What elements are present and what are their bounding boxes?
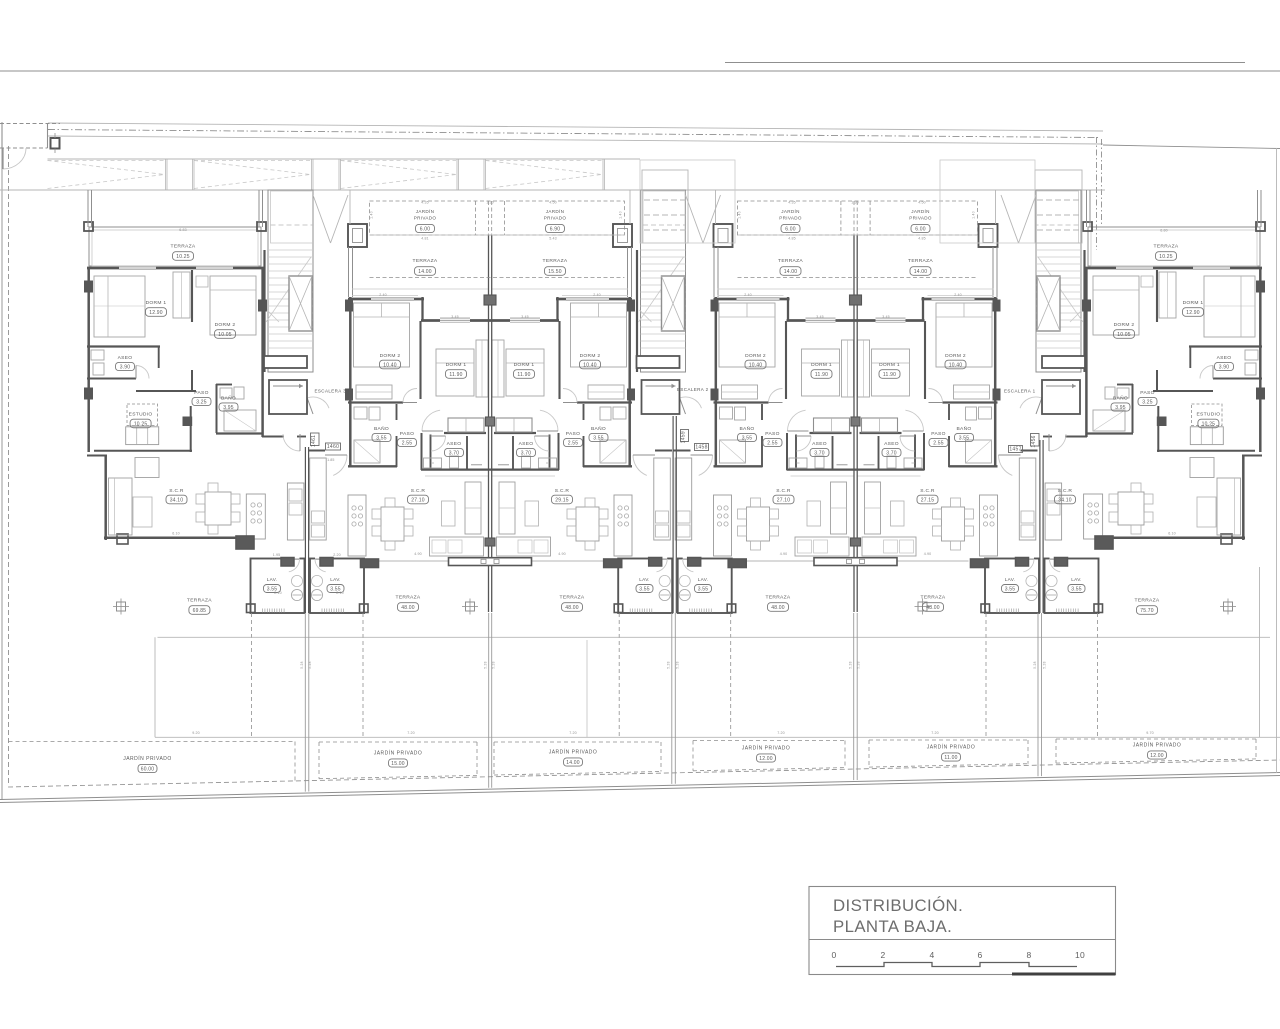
svg-text:TERRAZA: TERRAZA [396, 595, 421, 601]
svg-text:JARDÍN PRIVADO: JARDÍN PRIVADO [549, 749, 598, 756]
svg-text:ESTUDIO: ESTUDIO [1196, 412, 1220, 418]
svg-text:3.55: 3.55 [1005, 586, 1016, 592]
svg-text:PRIVADO: PRIVADO [779, 216, 802, 221]
svg-text:JARDÍN PRIVADO: JARDÍN PRIVADO [742, 745, 791, 752]
svg-text:3.45: 3.45 [521, 315, 528, 319]
svg-text:5.28: 5.28 [849, 661, 853, 668]
svg-text:29.15: 29.15 [555, 497, 569, 503]
svg-text:DORM 1: DORM 1 [146, 300, 167, 306]
svg-text:3.55: 3.55 [593, 435, 604, 441]
svg-text:BAÑO: BAÑO [956, 425, 971, 432]
svg-text:12.00: 12.00 [759, 756, 773, 762]
svg-text:4.35: 4.35 [788, 201, 795, 205]
svg-text:5.28: 5.28 [308, 661, 312, 668]
svg-text:PRIVADO: PRIVADO [544, 216, 567, 221]
svg-text:DORM 1: DORM 1 [879, 362, 900, 368]
svg-text:8: 8 [1026, 950, 1031, 960]
svg-text:PLANTA BAJA.: PLANTA BAJA. [833, 917, 952, 936]
svg-text:2: 2 [880, 950, 885, 960]
svg-text:TERRAZA: TERRAZA [908, 258, 933, 264]
svg-text:4.81: 4.81 [421, 237, 428, 241]
svg-text:10.25: 10.25 [176, 254, 190, 260]
svg-text:1460: 1460 [327, 444, 339, 450]
svg-text:48.00: 48.00 [926, 605, 940, 611]
svg-text:PASO: PASO [765, 431, 779, 437]
svg-text:1461: 1461 [311, 435, 317, 447]
svg-text:ESCALERA 1: ESCALERA 1 [1004, 389, 1036, 394]
svg-text:3.70: 3.70 [814, 450, 825, 456]
svg-text:10.40: 10.40 [949, 362, 963, 368]
svg-text:1.40: 1.40 [972, 211, 976, 219]
svg-text:69.85: 69.85 [193, 608, 207, 614]
svg-text:27.15: 27.15 [921, 497, 935, 503]
svg-text:12.00: 12.00 [1150, 753, 1164, 759]
svg-text:2.10: 2.10 [336, 591, 343, 595]
svg-text:DORM 2: DORM 2 [580, 353, 601, 359]
svg-text:0: 0 [831, 950, 836, 960]
svg-text:6.00: 6.00 [915, 226, 926, 232]
svg-text:1456: 1456 [1031, 435, 1037, 447]
svg-text:9.70: 9.70 [1146, 731, 1153, 735]
svg-text:15.00: 15.00 [391, 761, 405, 767]
svg-text:12.90: 12.90 [149, 310, 163, 316]
svg-text:3.55: 3.55 [1071, 586, 1082, 592]
svg-text:5.28: 5.28 [1042, 661, 1046, 668]
svg-text:10.40: 10.40 [749, 362, 763, 368]
svg-text:2.40: 2.40 [379, 293, 386, 297]
svg-text:4.50: 4.50 [549, 201, 556, 205]
svg-text:DORM 1: DORM 1 [1183, 300, 1204, 306]
svg-text:3.55: 3.55 [376, 435, 387, 441]
svg-text:3.55: 3.55 [742, 435, 753, 441]
svg-text:4.90: 4.90 [558, 552, 565, 556]
svg-text:2.40: 2.40 [744, 293, 751, 297]
svg-text:4.50: 4.50 [918, 201, 925, 205]
svg-text:3.45: 3.45 [816, 315, 823, 319]
svg-text:ESCALERA 2: ESCALERA 2 [677, 387, 709, 392]
svg-text:2.20: 2.20 [333, 553, 340, 557]
svg-text:TERRAZA: TERRAZA [921, 595, 946, 601]
svg-text:27.10: 27.10 [777, 497, 791, 503]
svg-text:15.50: 15.50 [548, 269, 562, 275]
svg-text:11.90: 11.90 [883, 372, 896, 378]
svg-text:LAV.: LAV. [1005, 577, 1016, 582]
svg-text:DORM 1: DORM 1 [446, 362, 467, 368]
svg-text:DORM 2: DORM 2 [945, 353, 966, 359]
svg-text:LAV.: LAV. [1071, 577, 1082, 582]
svg-text:75.70: 75.70 [1140, 608, 1154, 614]
svg-text:DISTRIBUCIÓN.: DISTRIBUCIÓN. [833, 896, 963, 915]
svg-text:JARDÍN PRIVADO: JARDÍN PRIVADO [123, 755, 172, 762]
svg-text:10.25: 10.25 [1159, 254, 1173, 260]
svg-text:JARDÍN: JARDÍN [911, 208, 929, 214]
svg-text:3.55: 3.55 [698, 586, 709, 592]
svg-text:11.90: 11.90 [449, 372, 462, 378]
svg-text:9.20: 9.20 [192, 731, 199, 735]
svg-text:S.C.R: S.C.R [555, 488, 570, 494]
svg-text:6.10: 6.10 [172, 532, 179, 536]
svg-text:5.28: 5.28 [667, 661, 671, 668]
svg-text:14.00: 14.00 [418, 269, 432, 275]
svg-text:27.10: 27.10 [411, 497, 425, 503]
svg-text:6.90: 6.90 [550, 226, 561, 232]
svg-text:TERRAZA: TERRAZA [778, 258, 803, 264]
svg-text:PRIVADO: PRIVADO [414, 216, 437, 221]
svg-text:1.85: 1.85 [327, 458, 334, 462]
svg-text:JARDÍN: JARDÍN [416, 208, 434, 214]
svg-text:48.00: 48.00 [401, 605, 415, 611]
svg-text:LAV.: LAV. [267, 577, 278, 582]
svg-text:2.10: 2.10 [274, 591, 281, 595]
svg-text:2.55: 2.55 [568, 440, 579, 446]
svg-text:14.00: 14.00 [784, 269, 798, 275]
svg-text:3.95: 3.95 [223, 405, 234, 411]
svg-text:S.C.R: S.C.R [411, 488, 426, 494]
svg-text:7.20: 7.20 [931, 731, 938, 735]
svg-text:PASO: PASO [400, 431, 414, 437]
svg-text:TERRAZA: TERRAZA [1135, 598, 1160, 604]
svg-text:3.45: 3.45 [882, 315, 889, 319]
svg-text:DORM 2: DORM 2 [1114, 322, 1135, 328]
svg-text:4.85: 4.85 [788, 237, 795, 241]
svg-text:1.40: 1.40 [370, 211, 374, 219]
svg-text:TERRAZA: TERRAZA [171, 244, 196, 250]
svg-text:PASO: PASO [1140, 390, 1154, 396]
svg-text:4: 4 [929, 950, 934, 960]
svg-text:1457: 1457 [1009, 447, 1021, 453]
svg-text:6.83: 6.83 [179, 228, 186, 232]
svg-text:48.00: 48.00 [771, 605, 785, 611]
svg-text:10.25: 10.25 [134, 421, 148, 427]
svg-text:ASEO: ASEO [118, 355, 133, 361]
svg-text:LAV.: LAV. [330, 577, 341, 582]
svg-text:10.40: 10.40 [383, 362, 397, 368]
svg-text:4.35: 4.35 [421, 201, 428, 205]
svg-text:TERRAZA: TERRAZA [560, 595, 585, 601]
svg-text:ASEO: ASEO [812, 441, 827, 447]
svg-text:11.00: 11.00 [944, 755, 957, 761]
svg-text:4.90: 4.90 [924, 552, 931, 556]
svg-text:5.28: 5.28 [300, 661, 304, 668]
svg-text:BAÑO: BAÑO [374, 425, 389, 432]
svg-text:TERRAZA: TERRAZA [413, 258, 438, 264]
svg-text:6: 6 [977, 950, 982, 960]
svg-text:TERRAZA: TERRAZA [543, 258, 568, 264]
svg-text:JARDÍN PRIVADO: JARDÍN PRIVADO [374, 750, 423, 757]
svg-text:TERRAZA: TERRAZA [187, 598, 212, 604]
svg-text:3.45: 3.45 [451, 315, 458, 319]
svg-text:10.40: 10.40 [583, 362, 597, 368]
svg-text:3.25: 3.25 [1142, 399, 1153, 405]
svg-text:DORM 1: DORM 1 [514, 362, 535, 368]
svg-text:3.90: 3.90 [120, 364, 131, 370]
svg-text:S.C.R: S.C.R [1058, 488, 1073, 494]
svg-text:DORM 2: DORM 2 [745, 353, 766, 359]
svg-text:10.05: 10.05 [218, 332, 232, 338]
svg-text:1.40: 1.40 [738, 211, 742, 219]
svg-text:PASO: PASO [931, 431, 945, 437]
svg-text:5.28: 5.28 [676, 661, 680, 668]
svg-text:5.28: 5.28 [1033, 661, 1037, 668]
svg-text:1458: 1458 [695, 445, 707, 451]
svg-text:ASEO: ASEO [884, 441, 899, 447]
svg-text:PASO: PASO [194, 390, 208, 396]
svg-text:3.70: 3.70 [886, 450, 897, 456]
svg-text:11.90: 11.90 [517, 372, 530, 378]
svg-text:BAÑO: BAÑO [1113, 395, 1128, 402]
svg-text:1.40: 1.40 [619, 211, 623, 219]
svg-text:60.00: 60.00 [141, 766, 155, 772]
svg-text:5.28: 5.28 [857, 661, 861, 668]
svg-text:JARDÍN: JARDÍN [781, 208, 799, 214]
svg-text:1459: 1459 [681, 431, 687, 443]
svg-text:ASEO: ASEO [447, 441, 462, 447]
svg-text:3.55: 3.55 [639, 586, 650, 592]
svg-text:4.90: 4.90 [780, 552, 787, 556]
svg-text:ESCALERA 3: ESCALERA 3 [315, 389, 347, 394]
svg-text:JARDÍN: JARDÍN [546, 208, 564, 214]
svg-text:JARDÍN PRIVADO: JARDÍN PRIVADO [927, 744, 976, 751]
svg-text:S.C.R: S.C.R [169, 488, 184, 494]
svg-text:ASEO: ASEO [1217, 355, 1232, 361]
svg-text:2.55: 2.55 [767, 440, 778, 446]
svg-text:2.40: 2.40 [593, 293, 600, 297]
svg-text:DORM 2: DORM 2 [215, 322, 236, 328]
svg-text:DORM 1: DORM 1 [811, 362, 832, 368]
svg-text:BAÑO: BAÑO [739, 425, 754, 432]
svg-text:7.20: 7.20 [777, 731, 784, 735]
svg-text:6.00: 6.00 [785, 226, 796, 232]
svg-text:14.00: 14.00 [914, 269, 928, 275]
svg-text:10: 10 [1075, 950, 1085, 960]
svg-text:12.90: 12.90 [1186, 310, 1200, 316]
svg-text:5.43: 5.43 [549, 237, 556, 241]
svg-text:BAÑO: BAÑO [591, 425, 606, 432]
svg-text:48.00: 48.00 [565, 605, 579, 611]
svg-text:BAÑO: BAÑO [221, 395, 236, 402]
svg-text:7.20: 7.20 [569, 731, 576, 735]
svg-text:2.40: 2.40 [954, 293, 961, 297]
svg-text:34.10: 34.10 [1058, 497, 1072, 503]
svg-text:11.90: 11.90 [815, 372, 828, 378]
svg-text:ESTUDIO: ESTUDIO [129, 412, 153, 418]
svg-text:14.00: 14.00 [566, 760, 580, 766]
svg-text:3.70: 3.70 [449, 450, 460, 456]
svg-text:1.95: 1.95 [273, 553, 280, 557]
svg-text:10.25: 10.25 [1202, 421, 1216, 427]
svg-text:ASEO: ASEO [519, 441, 534, 447]
svg-text:TERRAZA: TERRAZA [766, 595, 791, 601]
svg-text:6.00: 6.00 [420, 226, 431, 232]
svg-text:6.80: 6.80 [1160, 229, 1167, 233]
svg-text:4.85: 4.85 [918, 237, 925, 241]
svg-text:3.25: 3.25 [196, 399, 207, 405]
svg-text:JARDÍN PRIVADO: JARDÍN PRIVADO [1133, 742, 1182, 749]
svg-text:1.30: 1.30 [851, 201, 858, 205]
svg-text:S.C.R: S.C.R [776, 488, 791, 494]
svg-text:6.10: 6.10 [1168, 532, 1175, 536]
svg-text:5.28: 5.28 [492, 661, 496, 668]
svg-text:DORM 2: DORM 2 [380, 353, 401, 359]
svg-text:PRIVADO: PRIVADO [909, 216, 932, 221]
svg-text:2.55: 2.55 [933, 440, 944, 446]
svg-text:S.C.R: S.C.R [920, 488, 935, 494]
svg-text:1.30: 1.30 [486, 201, 493, 205]
svg-text:TERRAZA: TERRAZA [1154, 244, 1179, 250]
svg-text:2.55: 2.55 [402, 440, 413, 446]
svg-text:PASO: PASO [566, 431, 580, 437]
svg-text:34.10: 34.10 [170, 497, 184, 503]
svg-text:10.05: 10.05 [1117, 332, 1131, 338]
svg-text:LAV.: LAV. [639, 577, 650, 582]
svg-text:4.90: 4.90 [414, 552, 421, 556]
svg-text:5.28: 5.28 [484, 661, 488, 668]
svg-text:LAV.: LAV. [698, 577, 709, 582]
svg-text:3.55: 3.55 [959, 435, 970, 441]
svg-text:3.95: 3.95 [1115, 405, 1126, 411]
svg-text:7.20: 7.20 [407, 731, 414, 735]
svg-text:3.70: 3.70 [521, 450, 532, 456]
svg-text:3.90: 3.90 [1219, 364, 1230, 370]
